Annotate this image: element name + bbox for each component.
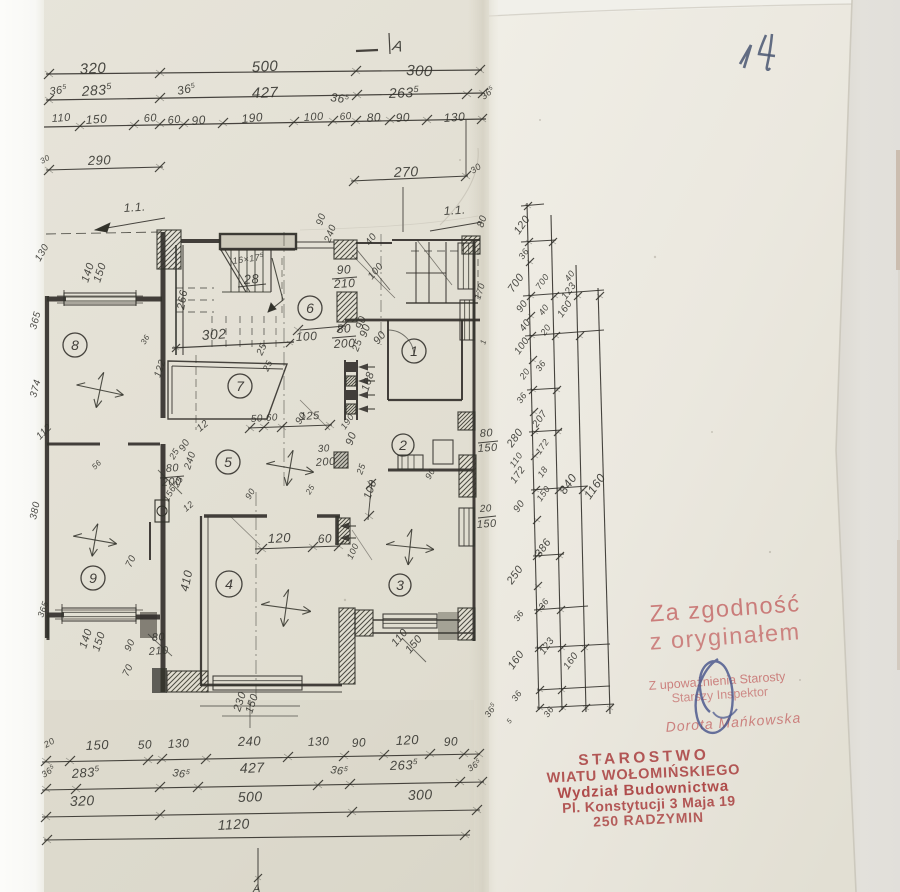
svg-text:1120: 1120 <box>217 815 250 833</box>
svg-text:1.1.: 1.1. <box>443 202 466 218</box>
svg-text:8: 8 <box>71 337 79 353</box>
svg-text:5: 5 <box>224 454 232 470</box>
svg-text:80: 80 <box>479 427 493 440</box>
svg-text:60: 60 <box>339 111 352 123</box>
svg-text:80: 80 <box>165 462 179 475</box>
svg-text:500: 500 <box>238 788 263 805</box>
svg-text:190: 190 <box>241 110 264 126</box>
svg-text:60: 60 <box>143 112 157 125</box>
svg-text:100: 100 <box>303 111 324 124</box>
svg-text:110: 110 <box>51 112 71 125</box>
svg-text:60: 60 <box>167 114 182 127</box>
svg-text:300: 300 <box>408 786 433 803</box>
svg-text:A: A <box>252 883 261 892</box>
svg-text:2: 2 <box>398 437 407 453</box>
svg-text:320: 320 <box>79 60 107 78</box>
svg-text:60: 60 <box>266 412 279 424</box>
svg-text:290: 290 <box>87 152 112 168</box>
svg-text:1.1.: 1.1. <box>123 199 146 215</box>
svg-text:60: 60 <box>317 531 332 546</box>
svg-text:427: 427 <box>252 84 279 102</box>
svg-text:30: 30 <box>317 443 330 455</box>
svg-text:427: 427 <box>240 759 266 776</box>
svg-text:270: 270 <box>393 163 419 180</box>
svg-text:150: 150 <box>85 112 107 127</box>
svg-text:150: 150 <box>477 442 498 455</box>
svg-text:130: 130 <box>307 734 329 749</box>
svg-text:130: 130 <box>443 110 465 125</box>
svg-text:3: 3 <box>396 577 404 593</box>
svg-text:80: 80 <box>366 110 381 125</box>
svg-text:9: 9 <box>89 570 97 586</box>
svg-text:130: 130 <box>167 736 189 751</box>
svg-text:90: 90 <box>336 262 351 277</box>
svg-text:80: 80 <box>336 321 351 336</box>
svg-text:120: 120 <box>267 530 291 546</box>
svg-text:300: 300 <box>406 62 434 80</box>
svg-text:50: 50 <box>137 737 152 752</box>
svg-text:100: 100 <box>295 329 317 344</box>
svg-text:6: 6 <box>306 300 314 316</box>
svg-text:120: 120 <box>395 732 419 748</box>
svg-text:4: 4 <box>225 576 233 592</box>
svg-text:90: 90 <box>395 110 410 125</box>
svg-text:50: 50 <box>251 413 264 425</box>
svg-text:20: 20 <box>478 503 492 515</box>
svg-text:90: 90 <box>443 734 458 749</box>
svg-text:90: 90 <box>351 735 366 750</box>
svg-text:500: 500 <box>251 58 279 76</box>
svg-text:302: 302 <box>201 325 227 343</box>
svg-text:7: 7 <box>236 378 245 394</box>
svg-text:80: 80 <box>151 631 165 644</box>
svg-text:150: 150 <box>85 737 109 753</box>
svg-text:150: 150 <box>476 518 497 531</box>
svg-text:320: 320 <box>70 792 95 809</box>
svg-text:240: 240 <box>237 733 262 749</box>
svg-text:210: 210 <box>147 645 169 658</box>
svg-text:90: 90 <box>191 113 207 128</box>
svg-text:200: 200 <box>314 456 336 469</box>
